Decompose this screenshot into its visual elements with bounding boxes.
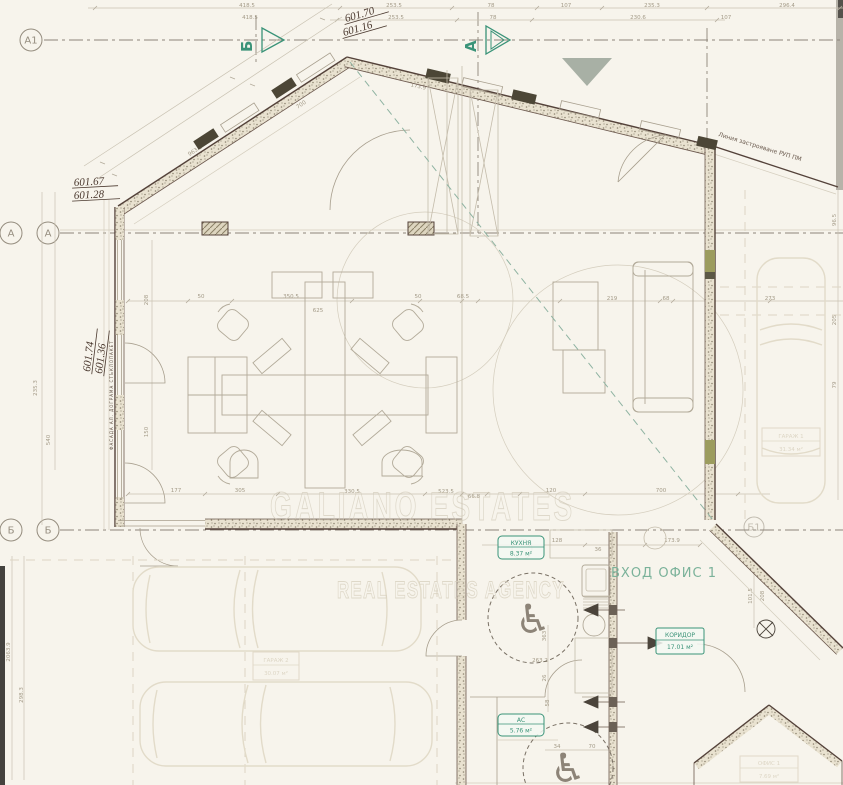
column	[202, 222, 228, 235]
dimension-label: 58	[545, 699, 551, 706]
svg-text:8.37 м²: 8.37 м²	[510, 551, 533, 558]
dimension-label: 350.5	[283, 294, 299, 300]
section-label-b: Б	[238, 41, 256, 52]
room-label-wc: АС 5.76 м²	[498, 714, 544, 736]
grid-label-b-inner: Б	[45, 526, 52, 537]
grid-bubble-b-outer: Б	[0, 519, 22, 541]
coffee-table	[553, 282, 598, 350]
svg-text:ОФИС 1: ОФИС 1	[758, 761, 780, 767]
dimension-label: 235.3	[33, 380, 39, 396]
dimension-label: 235.3	[644, 3, 660, 9]
grid-bubble-b1: Б1	[744, 517, 764, 537]
svg-text:31.34 м²: 31.34 м²	[779, 446, 803, 453]
dimension-label: 253.5	[386, 3, 402, 9]
car-top-view	[757, 258, 825, 503]
dimension-label: 253.5	[388, 15, 404, 21]
watermark-brand: GALIANO ESTATES	[270, 485, 575, 529]
dimension-label: 70	[589, 744, 596, 750]
grid-label-b-outer: Б	[8, 526, 15, 537]
grid-label-b1: Б1	[747, 523, 760, 534]
dimension-chains	[12, 4, 843, 780]
construction-circles	[337, 212, 743, 515]
benchmark-icon	[757, 620, 775, 638]
construction-diagonal	[350, 62, 713, 520]
dimension-label: 296.4	[779, 3, 795, 9]
wall-olive-accent	[705, 250, 715, 272]
page-edges	[0, 0, 843, 785]
door-arcs	[125, 130, 745, 697]
dimension-label: 700	[656, 488, 667, 494]
dimension-label: 78	[490, 15, 497, 21]
svg-text:5.76 м²: 5.76 м²	[510, 728, 533, 735]
dimension-label: 625	[313, 308, 324, 314]
dimension-label: 96.5	[832, 213, 838, 226]
svg-text:АС: АС	[517, 717, 525, 724]
flag-icon	[609, 637, 662, 649]
dimension-label: 418.5	[242, 15, 258, 21]
dimension-label: 79	[832, 381, 838, 388]
construction-line-note: Линия застрояване РУП ПМ	[717, 131, 802, 163]
svg-text:КОРИДОР: КОРИДОР	[665, 632, 695, 639]
dimension-label: 78	[488, 3, 495, 9]
dimension-label: 101.5	[748, 588, 754, 604]
car-top-view	[140, 682, 432, 766]
svg-text:ГАРАЖ 2: ГАРАЖ 2	[263, 658, 288, 664]
dimension-label: 107	[721, 15, 732, 21]
grid-bubble-a-inner: А	[37, 222, 59, 244]
room-label-garage-left: ГАРАЖ 2 30.07 м²	[253, 652, 299, 680]
watermark-tagline: REAL ESTATES AGENCY	[337, 577, 565, 604]
grid-bubble-a1: А1	[20, 29, 42, 51]
dimension-label: 173.9	[664, 538, 680, 544]
flag-icon	[584, 604, 625, 616]
grid-bubble-a-outer: А	[0, 222, 22, 244]
facade-micro-note: ФАСАДА АЛ. ДОГРАМА СТЪКЛОПАКЕТ	[109, 340, 114, 450]
dimension-label: 177	[171, 488, 182, 494]
grid-label-a-outer: А	[8, 229, 15, 240]
svg-text:7.69 м²: 7.69 м²	[759, 773, 779, 780]
dimension-label: 208	[144, 294, 150, 305]
room-label-office-small: ОФИС 1 7.69 м²	[740, 756, 798, 782]
floor-plan-page: А1 А А Б Б Б1	[0, 0, 843, 785]
dimension-label: 68	[663, 296, 670, 302]
dimension-label: 36	[595, 547, 602, 553]
svg-text:17.01 м²: 17.01 м²	[667, 644, 694, 651]
grid-label-a1: А1	[24, 36, 37, 47]
dimension-label: 418.5	[239, 3, 255, 9]
floor-plan-canvas: А1 А А Б Б Б1	[0, 0, 843, 785]
dimension-label: 298.3	[19, 687, 25, 703]
dimension-label: 305	[235, 488, 246, 494]
dimension-label: 219	[607, 296, 618, 302]
elevation-west-bottom: 601.36	[93, 342, 109, 374]
dimension-label: 273	[765, 296, 776, 302]
dimension-label: 230.6	[630, 15, 646, 21]
dimension-label: 208	[760, 590, 766, 601]
entrance-label: ВХОД ОФИС 1	[611, 566, 717, 581]
grid-layer: А1 А А Б Б Б1	[0, 12, 843, 541]
dimension-label: 50	[198, 294, 205, 300]
north-triangle	[562, 58, 612, 86]
dimension-label: 128	[552, 538, 563, 544]
dimension-label: 205	[832, 314, 838, 325]
dimension-label: 26	[542, 674, 548, 681]
svg-text:КУХНЯ: КУХНЯ	[511, 540, 532, 547]
dimension-label: 540	[46, 434, 52, 445]
dimension-label: 107	[561, 3, 572, 9]
room-label-corridor: КОРИДОР 17.01 м²	[656, 628, 704, 654]
room-label-kitchen: КУХНЯ 8.37 м²	[498, 536, 544, 559]
dimension-label: 68.5	[457, 294, 470, 300]
svg-text:30.07 м²: 30.07 м²	[264, 670, 288, 677]
kitchen-counter	[550, 530, 612, 558]
wheelchair-icon: ♿	[550, 746, 586, 785]
sofa	[633, 262, 693, 412]
chair	[215, 304, 427, 484]
grid-label-a-inner: А	[45, 229, 52, 240]
dimension-label: 150	[144, 426, 150, 437]
flag-icon	[584, 696, 625, 708]
room-label-garage-right: ГАРАЖ 1 31.34 м²	[762, 428, 820, 456]
svg-text:ГАРАЖ 1: ГАРАЖ 1	[778, 434, 803, 440]
dimension-label: 2063.9	[6, 642, 12, 662]
grid-bubble-b-inner: Б	[37, 519, 59, 541]
dimension-label: 50	[415, 294, 422, 300]
section-label-a: А	[462, 40, 480, 52]
flag-icon	[584, 721, 625, 733]
